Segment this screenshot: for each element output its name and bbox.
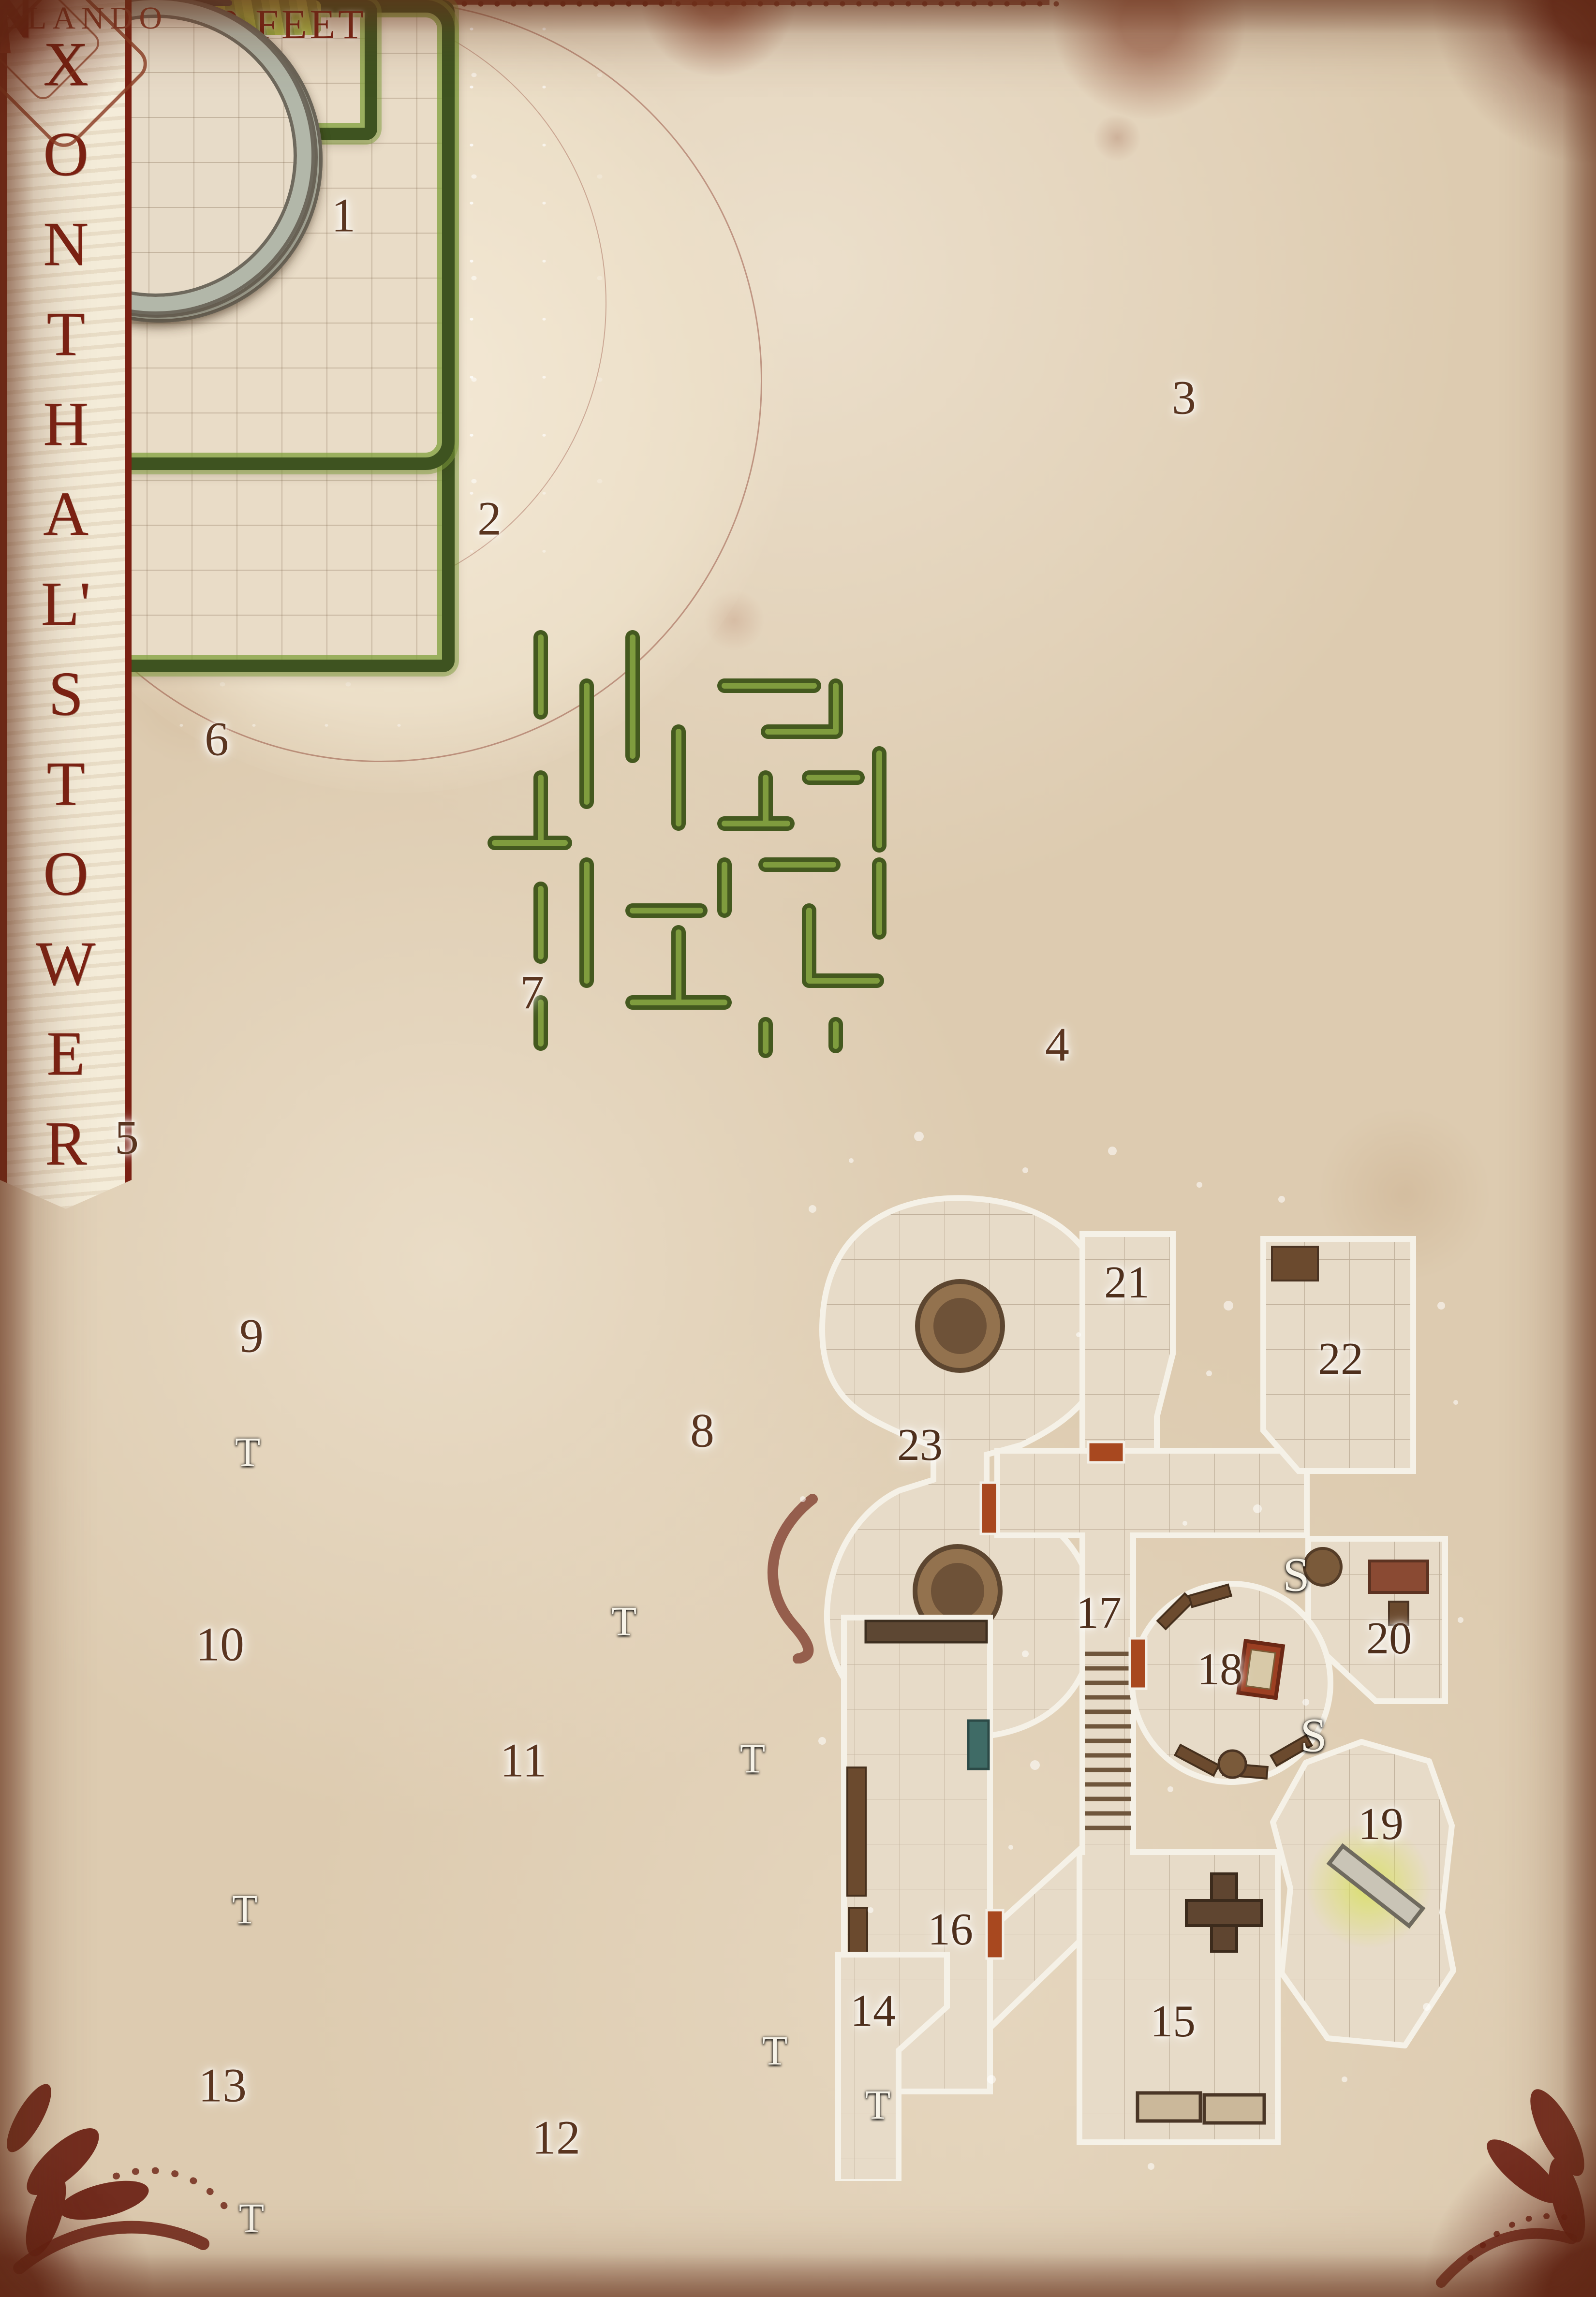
teleport-marker: T (865, 2080, 891, 2129)
banner-letter: R (45, 1099, 87, 1189)
desk (1370, 1561, 1428, 1592)
teleport-marker: T (235, 1428, 261, 1476)
pit-inner (933, 1298, 987, 1354)
label-room-8: 8 (690, 1403, 714, 1458)
door (1088, 1442, 1124, 1462)
teleport-marker: T (239, 2194, 265, 2242)
bench (1272, 1247, 1318, 1281)
map-table (1239, 1641, 1283, 1698)
door (987, 1910, 1003, 1958)
label-room-17: 17 (1076, 1587, 1122, 1639)
round-table (1304, 1548, 1341, 1585)
label-area-3: 3 (1172, 370, 1196, 426)
label-room-9: 9 (239, 1308, 264, 1364)
label-room-14: 14 (850, 1985, 896, 2037)
door (981, 1483, 997, 1534)
barrel (1219, 1751, 1246, 1778)
shelf (866, 1621, 987, 1642)
bench (847, 1767, 866, 1896)
door (1130, 1638, 1146, 1689)
banner-letter: A (43, 469, 89, 559)
banner-letter: E (46, 1009, 85, 1099)
banner-letter: S (48, 649, 83, 739)
label-area-4: 4 (1045, 1017, 1069, 1073)
banner-letter: T (46, 289, 85, 379)
label-room-18: 18 (1197, 1643, 1242, 1695)
label-room-10: 10 (196, 1617, 244, 1672)
teleport-marker: T (740, 1734, 766, 1782)
label-room-13: 13 (198, 2058, 247, 2113)
label-room-12: 12 (532, 2110, 580, 2165)
label-room-15: 15 (1150, 1995, 1196, 2047)
teleport-marker: T (232, 1885, 258, 1933)
label-room-23: 23 (897, 1419, 943, 1471)
label-area-6: 6 (205, 711, 229, 767)
label-room-19: 19 (1358, 1798, 1404, 1850)
secret-door-marker: S (1283, 1547, 1310, 1603)
secret-door-marker: S (1300, 1708, 1327, 1763)
label-area-1: 1 (331, 188, 355, 243)
teleport-marker: T (762, 2026, 788, 2075)
banner-letter: L' (41, 559, 91, 649)
teleport-marker: T (611, 1597, 637, 1645)
paintings (1138, 2093, 1264, 2123)
label-room-11: 11 (500, 1733, 547, 1788)
label-room-16: 16 (928, 1903, 973, 1956)
pit-inner (931, 1563, 984, 1619)
banner-letter: H (43, 379, 89, 469)
label-room-20: 20 (1366, 1612, 1412, 1664)
label-area-7: 7 (520, 965, 544, 1020)
cabinet (968, 1721, 989, 1769)
banner-letter: T (46, 739, 85, 829)
credit-signature: BLANDO (0, 0, 168, 37)
label-area-5: 5 (115, 1110, 139, 1165)
label-room-22: 22 (1318, 1333, 1363, 1385)
label-room-21: 21 (1104, 1256, 1150, 1309)
title-banner: X O N T H A L' S T O W E R (0, 0, 132, 1209)
banner-letter: W (36, 919, 96, 1009)
label-area-2: 2 (477, 491, 502, 546)
banner-letter: O (43, 829, 89, 919)
banner-letter: N (43, 199, 89, 289)
xonthals-tower-map: H A B G C F E D (0, 0, 1596, 2297)
